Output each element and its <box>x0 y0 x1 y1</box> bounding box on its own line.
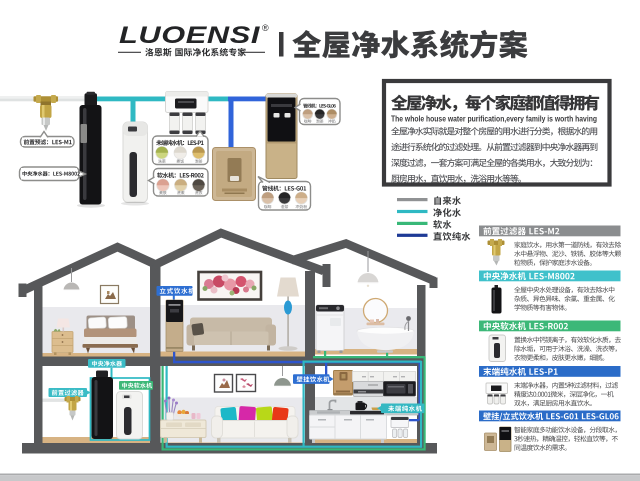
svg-text:The whole house water purifica: The whole house water purification,every… <box>391 115 597 124</box>
svg-text:LUOENSI: LUOENSI <box>119 22 261 49</box>
svg-text:®: ® <box>262 23 269 33</box>
